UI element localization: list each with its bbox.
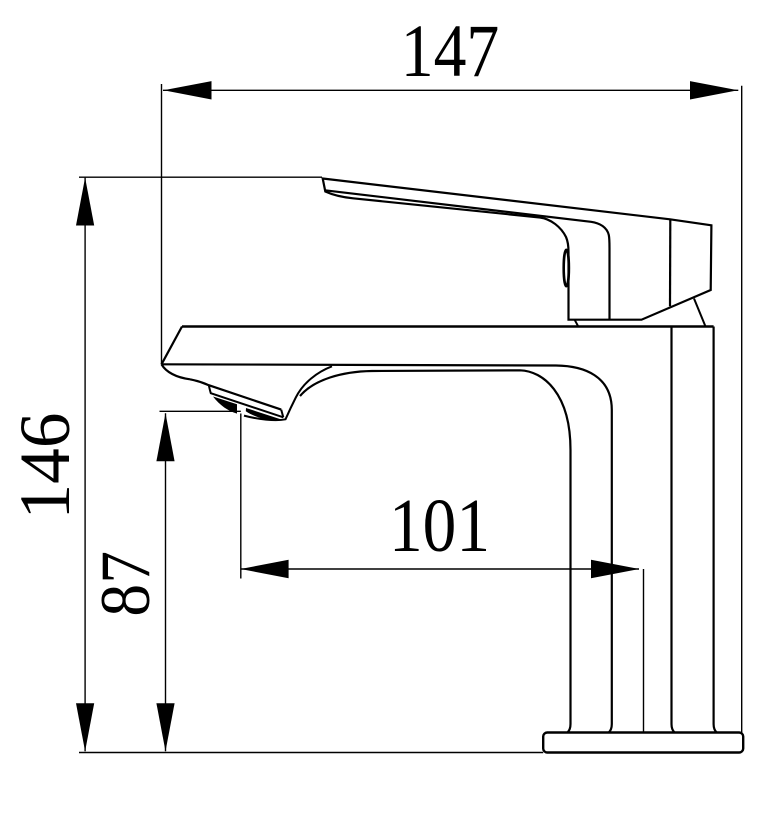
svg-text:147: 147: [401, 10, 500, 93]
svg-text:101: 101: [389, 484, 490, 568]
svg-text:87: 87: [87, 551, 165, 617]
svg-text:146: 146: [5, 413, 85, 520]
